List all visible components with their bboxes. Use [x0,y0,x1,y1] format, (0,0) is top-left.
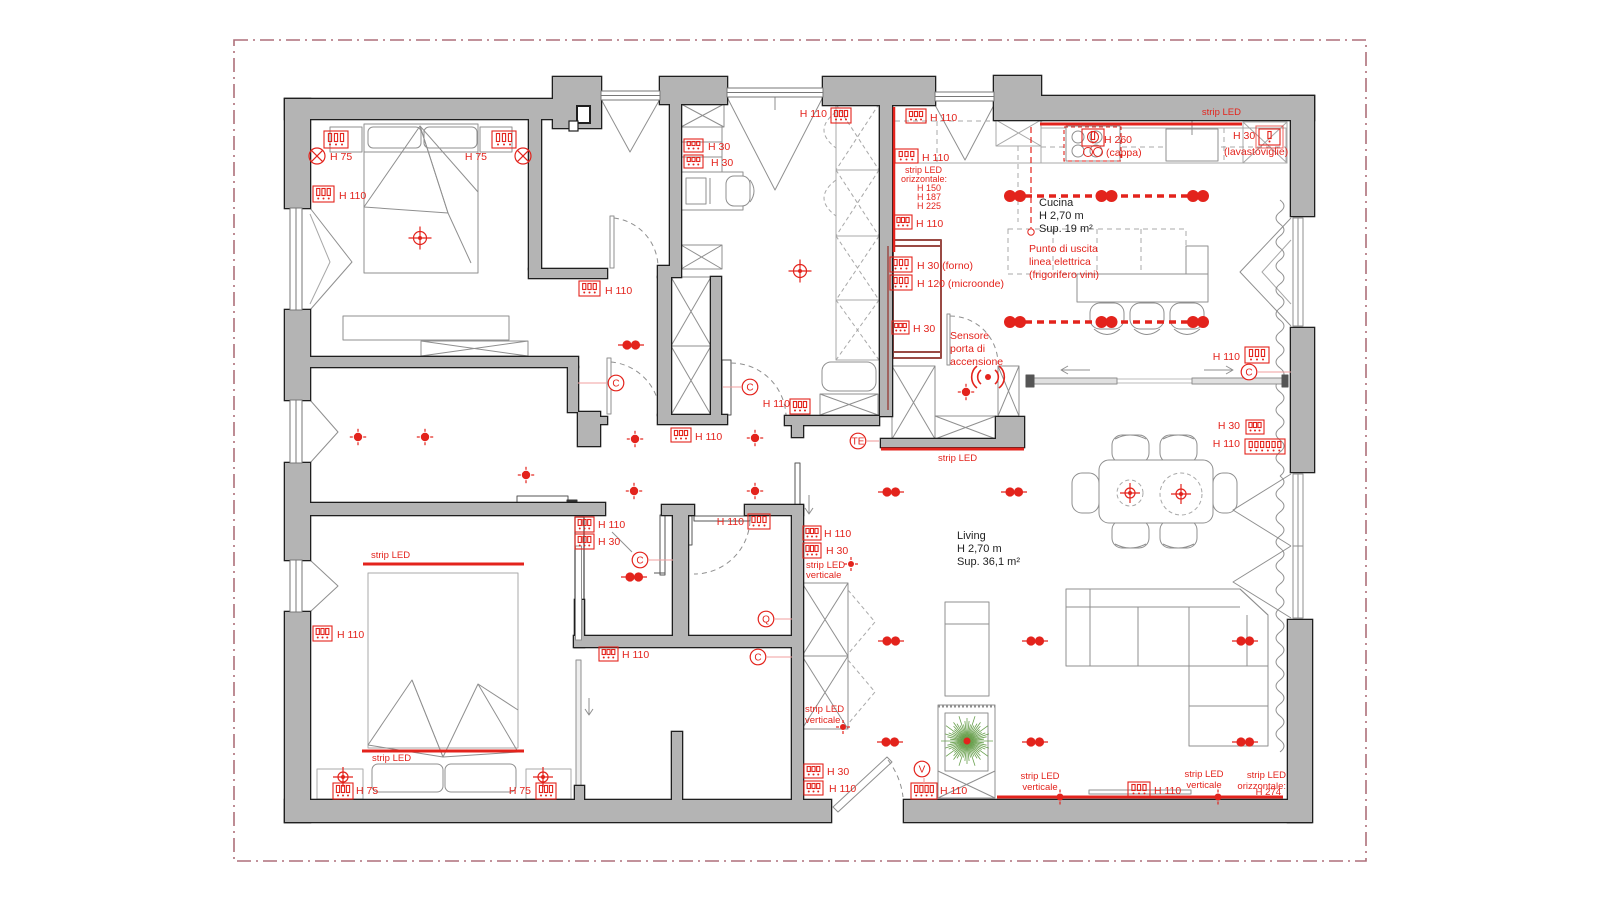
svg-text:H 274: H 274 [1256,787,1281,798]
svg-text:H 75: H 75 [509,785,531,797]
svg-text:H 110: H 110 [800,108,827,120]
svg-text:H 120 (microonde): H 120 (microonde) [917,278,1004,290]
svg-text:C: C [746,383,753,394]
svg-text:H 110: H 110 [829,783,856,795]
svg-text:H 30: H 30 [827,766,849,778]
svg-text:verticale: verticale [1022,782,1057,793]
svg-text:C: C [754,653,761,664]
svg-text:Living: Living [957,530,986,542]
svg-text:Q: Q [762,615,770,626]
svg-text:porta di: porta di [950,343,985,355]
svg-text:H 110: H 110 [339,190,366,202]
svg-text:H 110: H 110 [1154,785,1181,797]
svg-text:H 75: H 75 [330,151,352,163]
svg-text:TE: TE [852,437,865,448]
svg-text:V: V [919,765,926,776]
svg-text:strip LED: strip LED [1184,769,1223,780]
svg-text:H 110: H 110 [695,431,722,443]
svg-text:H 30: H 30 [598,536,620,548]
svg-text:H 30: H 30 [1233,130,1255,142]
svg-text:H 110: H 110 [824,528,851,540]
svg-text:C: C [612,379,619,390]
svg-text:verticale: verticale [1186,780,1221,791]
svg-text:H 110: H 110 [1213,438,1240,450]
svg-text:H 110: H 110 [717,516,744,528]
svg-text:H 110: H 110 [940,785,967,797]
svg-text:H 30: H 30 [1218,420,1240,432]
svg-text:H 110: H 110 [598,519,625,531]
svg-text:H 260: H 260 [1104,134,1132,146]
svg-text:H 30: H 30 [913,323,935,335]
svg-text:C: C [1245,368,1252,379]
svg-text:(frigorifero vini): (frigorifero vini) [1029,269,1099,281]
svg-text:H 110: H 110 [1213,351,1240,363]
svg-text:strip LED: strip LED [938,453,977,464]
svg-text:H 110: H 110 [622,649,649,661]
svg-text:verticale: verticale [805,715,840,726]
svg-text:H 110: H 110 [337,629,364,641]
svg-text:H 225: H 225 [917,201,941,211]
svg-text:verticale: verticale [806,570,841,581]
svg-text:strip LED: strip LED [1020,771,1059,782]
svg-text:H 110: H 110 [605,285,632,297]
svg-text:H 75: H 75 [356,785,378,797]
svg-text:strip LED: strip LED [805,704,844,715]
svg-text:H 30: H 30 [826,545,848,557]
svg-text:Cucina: Cucina [1039,197,1074,209]
svg-text:strip LED: strip LED [1202,107,1241,118]
svg-text:C: C [636,556,643,567]
svg-text:H 2,70 m: H 2,70 m [1039,210,1084,222]
svg-text:H 110: H 110 [930,112,957,124]
svg-text:Punto di uscita: Punto di uscita [1029,243,1098,255]
svg-text:H 2,70 m: H 2,70 m [957,543,1002,555]
svg-text:(cappa): (cappa) [1106,147,1142,159]
svg-text:Sup. 19 m²: Sup. 19 m² [1039,223,1093,235]
svg-text:strip LED: strip LED [372,753,411,764]
svg-text:Sup. 36,1 m²: Sup. 36,1 m² [957,556,1020,568]
svg-text:strip LED: strip LED [371,550,410,561]
svg-text:strip LED: strip LED [1247,770,1286,781]
svg-text:H 30 (forno): H 30 (forno) [917,260,973,272]
svg-text:H 30: H 30 [708,141,730,153]
svg-text:H 30: H 30 [711,157,733,169]
svg-text:H 110: H 110 [922,152,949,164]
svg-text:H 110: H 110 [916,218,943,230]
svg-text:H 110: H 110 [763,398,790,410]
svg-text:H 75: H 75 [465,151,487,163]
svg-text:linea elettrica: linea elettrica [1029,256,1091,268]
svg-text:Sensore: Sensore [950,330,989,342]
